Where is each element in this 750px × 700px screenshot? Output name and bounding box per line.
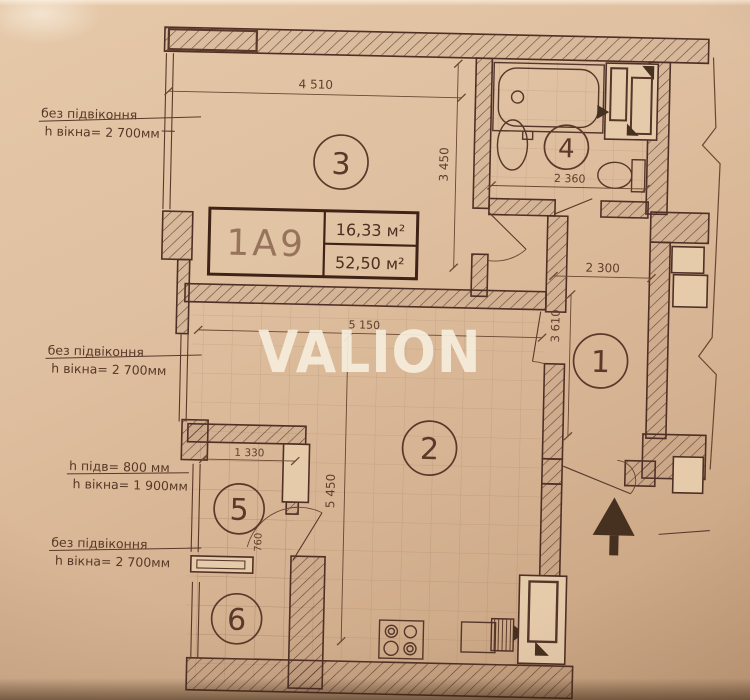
unit-label: 1А9 (226, 222, 306, 265)
dim-door-width: 760 (253, 533, 264, 552)
room-number-living: 2 (420, 432, 440, 467)
dim-bedroom-width: 4 510 (298, 77, 333, 92)
entrance-arrow (592, 497, 635, 556)
shaft-room5 (282, 444, 309, 503)
dim-living-width: 5 150 (348, 318, 380, 332)
annotation-room5-window: h підв= 800 мм h вікна= 1 900мм (66, 458, 189, 494)
dim-living-depth: 5 450 (323, 474, 338, 509)
dim-hall-depth: 3 610 (548, 309, 563, 342)
dim-bathroom-width: 2 360 (554, 172, 586, 186)
vent-shaft-bathroom (597, 63, 659, 140)
room-circle-hall: 1 (573, 333, 628, 388)
room-number-6: 6 (227, 603, 247, 638)
stair-edge-line (659, 529, 710, 535)
floor-plan-photo: 4 510 3 450 2 360 2 300 3 610 5 150 5 45… (0, 0, 750, 700)
room-number-5: 5 (229, 493, 249, 528)
dim-hall-width: 2 300 (585, 261, 620, 276)
annotation-living-window: без підвіконня h вікна= 2 700мм (45, 342, 202, 379)
annotation-line: h вікна= 2 700мм (55, 553, 171, 571)
dim-bedroom-depth: 3 450 (437, 147, 452, 182)
annotation-line: h вікна= 2 700мм (44, 123, 160, 141)
floor-tiles (184, 54, 648, 692)
duct-shaft-right (518, 575, 567, 664)
room-number-bedroom: 3 (331, 147, 351, 182)
living-window (179, 333, 188, 421)
annotation-line: h вікна= 1 900мм (72, 476, 188, 494)
bedroom-window (160, 53, 177, 209)
annotation-line: h вікна= 2 700мм (51, 361, 167, 379)
dim-room5-width: 1 330 (234, 447, 264, 460)
title-block: 1А9 16,33 м² 52,50 м² (208, 208, 417, 279)
room-number-hall: 1 (591, 345, 611, 380)
room-number-bathroom: 4 (558, 134, 575, 164)
window-annotations: без підвіконня h вікна= 2 700мм без підв… (29, 105, 211, 571)
plan-rotated: 4 510 3 450 2 360 2 300 3 610 5 150 5 45… (26, 24, 724, 700)
total-area-label: 52,50 м² (335, 253, 405, 274)
floor-plan-drawing: 4 510 3 450 2 360 2 300 3 610 5 150 5 45… (0, 0, 750, 700)
room-area-label: 16,33 м² (336, 220, 406, 241)
annotation-room6-window: без підвіконня h вікна= 2 700мм (49, 535, 202, 571)
annotation-bedroom-window: без підвіконня h вікна= 2 700мм (38, 105, 201, 142)
room-circle-bedroom: 3 (313, 134, 368, 189)
